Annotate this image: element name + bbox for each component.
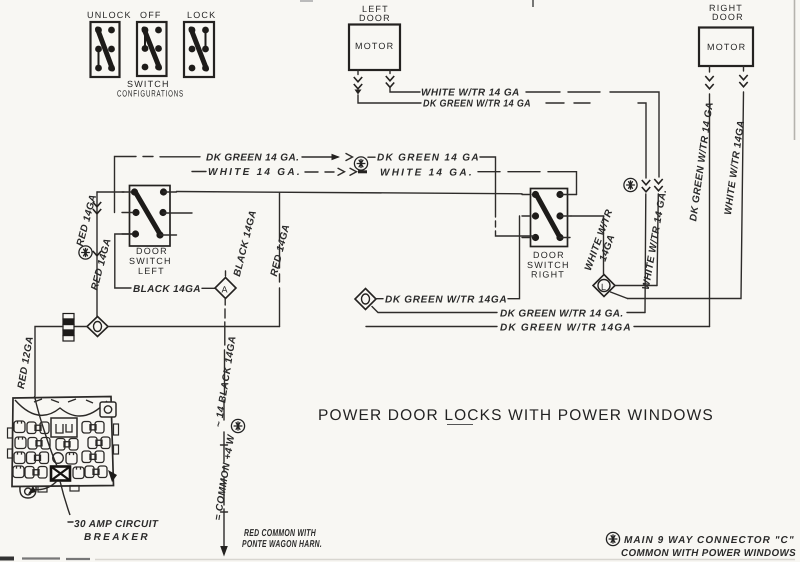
svg-text:CONFIGURATIONS: CONFIGURATIONS: [117, 89, 184, 99]
svg-text:SWITCH: SWITCH: [129, 256, 172, 266]
svg-text:PONTE WAGON HARN.: PONTE WAGON HARN.: [242, 539, 322, 550]
svg-text:DK GREEN W/TR 14GA: DK GREEN W/TR 14GA: [385, 295, 507, 306]
svg-text:DOOR: DOOR: [712, 12, 744, 22]
svg-text:DK GREEN W/TR 14 GA.: DK GREEN W/TR 14 GA.: [500, 309, 624, 320]
svg-text:MOTOR: MOTOR: [355, 41, 394, 51]
svg-text:30 AMP CIRCUIT: 30 AMP CIRCUIT: [74, 519, 159, 530]
svg-text:POWER DOOR LOCKS WITH POWER WI: POWER DOOR LOCKS WITH POWER WINDOWS: [318, 407, 714, 424]
svg-text:WHITE W/TR 14 GA: WHITE W/TR 14 GA: [421, 88, 520, 99]
svg-text:L: L: [601, 282, 607, 292]
svg-text:DK GREEN W/TR 14 GA: DK GREEN W/TR 14 GA: [423, 99, 531, 110]
svg-text:RIGHT: RIGHT: [531, 270, 565, 280]
svg-text:RED COMMON WITH: RED COMMON WITH: [244, 528, 316, 539]
svg-text:DOOR: DOOR: [359, 13, 391, 23]
svg-text:OFF: OFF: [140, 10, 162, 20]
svg-text:DOOR: DOOR: [533, 250, 565, 260]
svg-text:DK GREEN W/TR 14GA: DK GREEN W/TR 14GA: [500, 323, 631, 334]
svg-text:LEFT: LEFT: [138, 266, 165, 276]
svg-text:LOCK: LOCK: [187, 10, 216, 20]
svg-text:BLACK 14GA: BLACK 14GA: [133, 284, 201, 295]
svg-text:DK GREEN 14 GA.: DK GREEN 14 GA.: [206, 153, 299, 164]
svg-text:SWITCH: SWITCH: [527, 260, 570, 270]
svg-text:UNLOCK: UNLOCK: [87, 10, 132, 20]
svg-text:DK GREEN 14 GA: DK GREEN 14 GA: [377, 153, 479, 164]
svg-text:MAIN 9 WAY CONNECTOR "C": MAIN 9 WAY CONNECTOR "C": [624, 535, 794, 546]
svg-text:DOOR: DOOR: [136, 246, 168, 256]
svg-text:COMMON WITH POWER WINDOWS: COMMON WITH POWER WINDOWS: [621, 548, 796, 559]
svg-text:SWITCH: SWITCH: [127, 79, 170, 89]
svg-text:MOTOR: MOTOR: [707, 42, 746, 52]
svg-text:A: A: [222, 285, 229, 295]
